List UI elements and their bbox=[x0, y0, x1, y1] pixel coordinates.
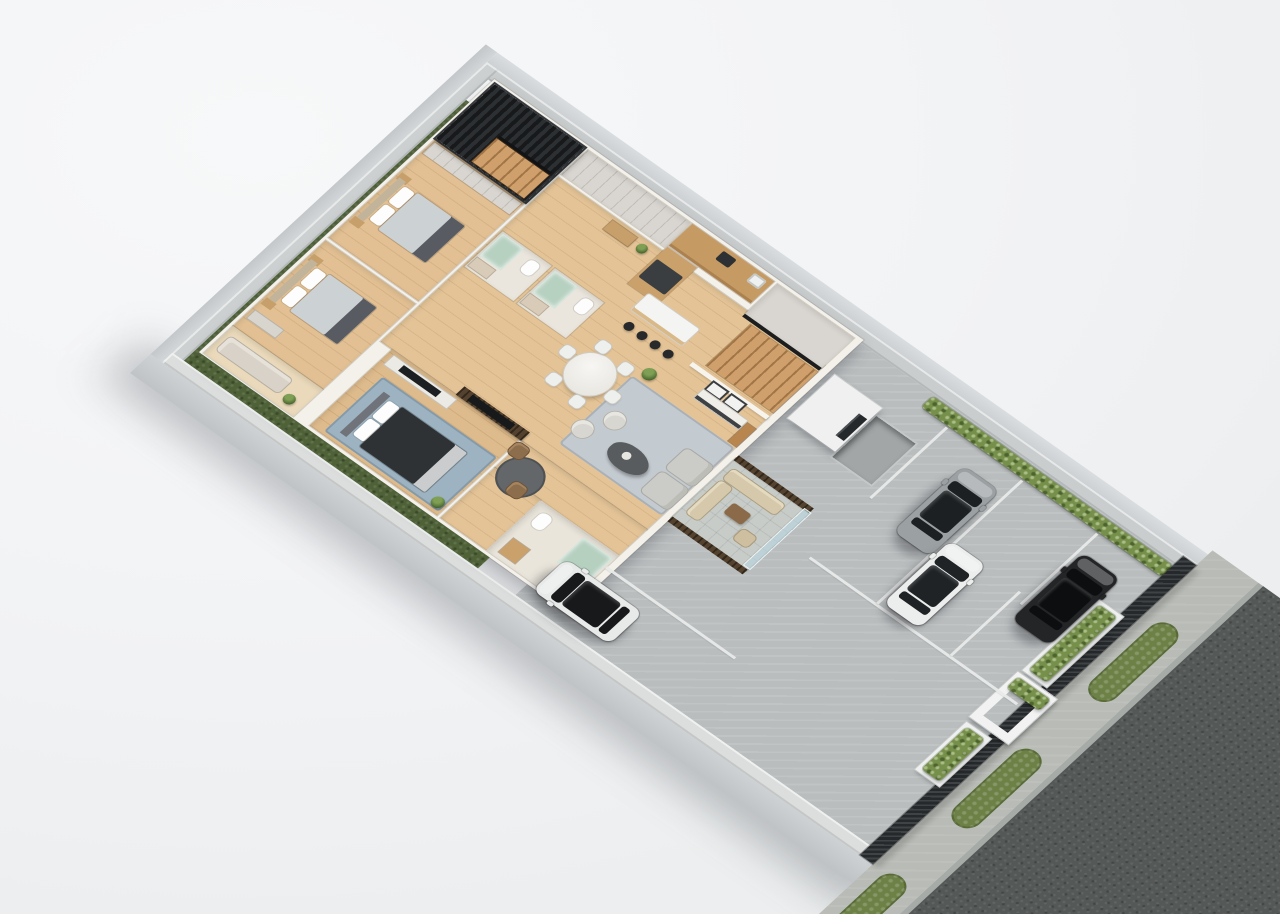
axonometric-stage bbox=[480, 62, 496, 75]
render-viewport bbox=[0, 0, 1280, 914]
